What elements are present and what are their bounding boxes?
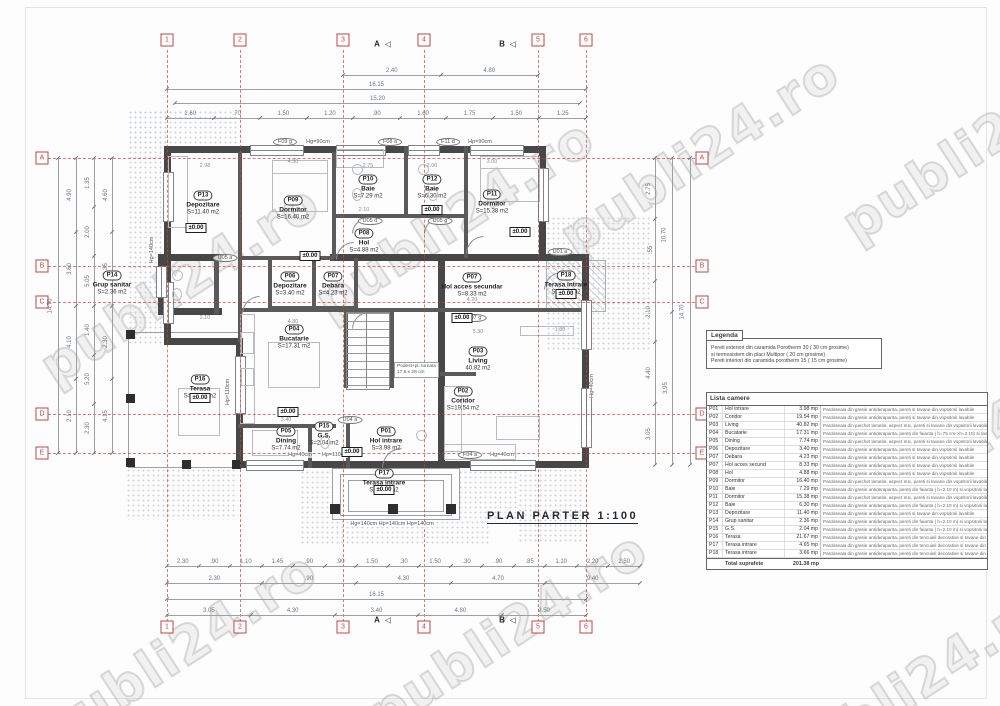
dimension-line — [167, 583, 640, 584]
room-id-tag: P06 — [281, 272, 300, 282]
dimension-value: .90 — [372, 111, 380, 117]
total-label: Total suprafete — [723, 559, 785, 569]
room-table-desc: Pardoseala din gresie antiderapanta, per… — [821, 446, 987, 453]
room-name: Baie — [353, 186, 382, 194]
room-id-tag: P07 — [324, 272, 343, 282]
dimension-value: 1.20 — [324, 111, 336, 117]
dimension-value: 2.30 — [103, 337, 109, 349]
room-table-area: 7.74 mp — [785, 438, 821, 445]
room-table-area: 3.66 mp — [785, 550, 821, 557]
room-table-area: 2.36 mp — [785, 518, 821, 525]
room-table-row: P04Bucatarie17.31 mpPardoseala din gresi… — [707, 430, 987, 438]
grid-bubble: 4 — [418, 621, 431, 634]
inner-dimension-value: 2.10 — [200, 315, 211, 321]
room-table-desc: Pardoseala din parchet lamelar, aspect n… — [821, 478, 987, 485]
room-id-tag: P18 — [557, 271, 576, 281]
dimension-value: .70 — [233, 111, 241, 117]
room-label: P02CoridorS=19.54 m2 — [447, 380, 480, 413]
window — [250, 145, 304, 156]
door-swing-arc — [466, 236, 484, 254]
room-area: S=15.38 m2 — [476, 209, 509, 216]
height-tag: Hp=90cm — [468, 139, 492, 145]
room-label: P08HolS=4.88 m2 — [349, 222, 378, 255]
room-table-name: Bucatarie — [723, 430, 785, 437]
room-table-name: Baie — [723, 502, 785, 509]
elevation-badge: ±0.00 — [452, 313, 473, 323]
room-table-desc: Pardoseala din parchet lamelar, aspect n… — [821, 494, 987, 501]
room-table-row: P01Hol intrare3.98 mpPardoseala din gres… — [707, 406, 987, 414]
inner-dimension-value: 1.80 — [555, 327, 566, 333]
column — [388, 504, 398, 514]
paving-hatch — [300, 470, 332, 522]
room-table-area: 4.88 mp — [785, 470, 821, 477]
dimension-value: 2.30 — [85, 423, 91, 435]
height-tag: Hg=40cm — [589, 374, 595, 398]
room-table-area: 17.31 mp — [785, 430, 821, 437]
dimension-tick — [638, 564, 642, 568]
dimension-value: 1.60 — [417, 111, 429, 117]
dimension-line — [167, 89, 586, 90]
room-table-area: 6.30 mp — [785, 502, 821, 509]
room-label: P09DormitorS=16.40 m2 — [277, 189, 310, 222]
room-table-desc: Pardoseala din gresie antiderapanta, per… — [821, 462, 987, 469]
room-table-row: P17Terasa intrare4.65 mpPardoseala din g… — [707, 542, 987, 550]
fixture-outline — [172, 270, 183, 281]
room-table-desc: Pardoseala din gresie antiderapanta, per… — [821, 518, 987, 525]
room-name: Baie — [417, 186, 446, 194]
room-name: Living — [465, 358, 490, 366]
dimension-tick — [653, 463, 657, 467]
door-window-tag: F04 a — [458, 451, 482, 459]
room-table-row: P08Hol4.88 mpPardoseala din gresie antid… — [707, 470, 987, 478]
interior-wall — [404, 146, 408, 218]
room-table-id: P01 — [707, 406, 723, 413]
dimension-value: 3.05 — [203, 608, 215, 614]
dimension-value: 4.30 — [287, 608, 299, 614]
fixture-outline — [172, 288, 182, 301]
room-label: P10BaieS=7.29 m2 — [353, 168, 382, 201]
legend-title: Legenda — [706, 330, 743, 341]
room-table-row: P05Dining7.74 mpPardoseala din parchet l… — [707, 438, 987, 446]
room-table-row: P03Living40.82 mpPardoseala din parchet … — [707, 422, 987, 430]
grid-axis-vertical — [167, 50, 168, 622]
dimension-value: 1.40 — [85, 324, 91, 336]
section-mark: B — [499, 40, 505, 49]
room-table-area: 16.40 mp — [785, 478, 821, 485]
dimension-value: 4.10 — [67, 337, 73, 349]
room-id-tag: P01 — [377, 427, 396, 437]
dimension-line — [167, 615, 586, 616]
room-name: Grup sanitar — [93, 282, 132, 290]
room-name: Dormitor — [277, 207, 310, 215]
room-table-desc: Pardoseala din gresie antiderapanta, per… — [821, 542, 987, 549]
room-table-name: G.S. — [723, 526, 785, 533]
room-name: Depozitare — [186, 202, 219, 210]
room-table-desc: Pardoseala din gresie antiderapanta, per… — [821, 454, 987, 461]
room-table-desc: Pardoseala din gresie antiderapanta, per… — [821, 534, 987, 541]
total-spacer — [707, 559, 723, 569]
room-list-table: Lista camere P01Hol intrare3.98 mpPardos… — [706, 392, 988, 570]
room-list-total-row: Total suprafete 201.38 mp — [707, 558, 987, 569]
elevation-badge: ±0.00 — [374, 485, 395, 495]
section-mark: A — [374, 40, 380, 49]
dimension-tick — [578, 101, 582, 105]
room-table-id: P11 — [707, 494, 723, 501]
room-area: S=11.40 m2 — [186, 210, 219, 217]
grid-bubble: 2 — [234, 34, 247, 47]
grid-axis-horizontal — [48, 158, 700, 159]
furniture-outline — [272, 160, 328, 174]
furniture-outline — [241, 332, 254, 354]
room-table-name: Terasa intrare — [723, 542, 785, 549]
column — [126, 458, 135, 467]
dimension-value: .90 — [494, 559, 502, 565]
room-id-tag: P12 — [423, 175, 442, 185]
grid-axis-horizontal — [48, 266, 700, 267]
door-window-tag: U01 a — [548, 248, 573, 256]
room-table-id: P12 — [707, 502, 723, 509]
room-name: Hol intrare — [370, 438, 403, 446]
room-table-id: P15 — [707, 526, 723, 533]
grid-bubble: 2 — [234, 621, 247, 634]
room-table-desc: Pardoseala din parchet lamelar, aspect n… — [821, 422, 987, 429]
column — [126, 330, 135, 339]
room-table-area: 4.65 mp — [785, 542, 821, 549]
window — [246, 460, 304, 471]
paving-hatch — [518, 468, 584, 544]
dimension-tick — [670, 463, 674, 467]
room-label: P04BucatarieS=17.31 m2 — [278, 318, 311, 351]
column — [126, 394, 135, 403]
section-arrow-icon: ◁ — [510, 40, 516, 49]
room-area: S=2.04 m2 — [309, 441, 338, 448]
room-table-desc: Pardoseala din gresie antiderapanta, per… — [821, 550, 987, 557]
room-area: S=16.40 m2 — [277, 215, 310, 222]
grid-axis-horizontal — [48, 414, 700, 415]
dimension-value: 2.10 — [67, 410, 73, 422]
dimension-value: 3.95 — [663, 382, 669, 394]
interior-wall — [440, 308, 586, 312]
dimension-value: 1.50 — [278, 111, 290, 117]
grid-bubble: 3 — [337, 621, 350, 634]
room-table-desc: Pardoseala din gresie antiderapanta, per… — [821, 470, 987, 477]
room-name: Hol acces secundar — [441, 284, 502, 292]
dimension-value: .30 — [399, 559, 407, 565]
dimension-value: 1.75 — [464, 111, 476, 117]
room-table-id: P02 — [707, 414, 723, 421]
dimension-value: 1.10 — [555, 559, 567, 565]
dimension-value: 1.35 — [85, 177, 91, 189]
total-value: 201.38 mp — [785, 559, 821, 569]
room-table-row: P10Baie7.29 mpPardoseala din gresie anti… — [707, 486, 987, 494]
room-label: P15G.S.S=2.04 m2 — [309, 415, 338, 448]
dimension-value: .55 — [648, 246, 654, 254]
room-id-tag: P07 — [463, 273, 482, 283]
room-table-id: P05 — [707, 438, 723, 445]
room-id-tag: P13 — [194, 191, 213, 201]
door-swing-arc — [242, 296, 260, 314]
paving-hatch — [126, 468, 238, 520]
room-id-tag: P10 — [359, 175, 378, 185]
door-window-tag: F08 a — [378, 138, 402, 146]
dimension-tick — [688, 463, 692, 467]
room-area: S=7.74 m2 — [271, 446, 300, 453]
inner-dimension-value: 2.10 — [359, 207, 370, 213]
room-table-name: Hol intrare — [723, 406, 785, 413]
dimension-value: .90 — [210, 559, 218, 565]
dimension-value: 2.30 — [177, 559, 189, 565]
room-name: Depozitare — [273, 283, 306, 291]
dimension-value: 3.60 — [67, 263, 73, 275]
grid-bubble: A — [696, 152, 709, 165]
room-name: Dormitor — [476, 201, 509, 209]
room-table-area: 11.40 mp — [785, 510, 821, 517]
room-table-id: P07 — [707, 462, 723, 469]
room-table-area: 15.38 mp — [785, 494, 821, 501]
grid-axis-vertical — [586, 50, 587, 622]
section-mark: A — [374, 616, 380, 625]
window — [470, 145, 524, 156]
room-label: P07Hol acces secundarS=8.33 m2 — [441, 266, 502, 299]
grid-bubble: C — [696, 296, 709, 309]
interior-wall — [238, 308, 442, 312]
room-table-area: 8.33 mp — [785, 462, 821, 469]
room-area: S=17.31 m2 — [278, 344, 311, 351]
dimension-value: 2.75 — [646, 183, 652, 195]
door-window-tag: F11 d — [436, 138, 460, 146]
room-id-tag: P05 — [277, 427, 296, 437]
grid-bubble: 4 — [418, 34, 431, 47]
room-table-area: 21.67 mp — [785, 534, 821, 541]
room-table-desc: Pardoseala din gresie antiderapanta, per… — [821, 502, 987, 509]
drawing-sheet: publi24.ropubli24.ropubli24.ropubli24.ro… — [0, 0, 1000, 706]
room-id-tag: P15 — [315, 422, 334, 432]
elevation-badge: ±0.00 — [556, 289, 577, 299]
room-area: S=4.23 m2 — [318, 291, 347, 298]
room-area: S=19.54 m2 — [447, 406, 480, 413]
interior-wall — [440, 372, 476, 376]
dimension-value: 4.40 — [646, 367, 652, 379]
room-table-name: Debara — [723, 454, 785, 461]
room-id-tag: P14 — [103, 271, 122, 281]
window — [470, 460, 536, 471]
room-table-id: P04 — [707, 430, 723, 437]
height-tag: Hg=40cm — [288, 452, 312, 458]
dimension-value: 1.10 — [240, 559, 252, 565]
dimension-line — [167, 118, 586, 119]
column — [330, 504, 340, 514]
dimension-value: 4.70 — [492, 576, 504, 582]
room-label: P07DebaraS=4.23 m2 — [318, 265, 347, 298]
room-table-name: Baie — [723, 486, 785, 493]
dimension-value: 3.40 — [371, 608, 383, 614]
room-table-id: P03 — [707, 422, 723, 429]
room-table-area: 3.98 mp — [785, 406, 821, 413]
room-table-name: Dormitor — [723, 494, 785, 501]
stairs-note: Podest+pl. turnata17.6 x 28 cm — [394, 362, 439, 378]
room-label: P05DiningS=7.74 m2 — [271, 420, 300, 453]
room-area: 40.82 m2 — [465, 366, 490, 373]
grid-axis-horizontal — [48, 302, 700, 303]
dimension-line — [167, 566, 640, 567]
dimension-value: 2.40 — [386, 68, 398, 74]
grid-axis-vertical — [424, 50, 425, 622]
room-table-desc: Pardoseala din parchet lamelar, aspect n… — [821, 438, 987, 445]
room-name: Bucatarie — [278, 336, 311, 344]
inner-dimension-value: 5.30 — [473, 329, 484, 335]
grid-axis-vertical — [538, 50, 539, 622]
room-table-id: P17 — [707, 542, 723, 549]
room-table-row: P09Dormitor16.40 mpPardoseala din parche… — [707, 478, 987, 486]
height-tag: Hg=40cm — [490, 452, 514, 458]
room-table-id: P09 — [707, 478, 723, 485]
dimension-value: 2.10 — [646, 306, 652, 318]
room-table-id: P06 — [707, 446, 723, 453]
room-label: P03Living40.82 m2 — [465, 340, 490, 373]
legend-line: Pereti interiori din caramida porotherm … — [711, 358, 877, 365]
dimension-value: .90 — [336, 559, 344, 565]
grid-bubble: A — [36, 152, 49, 165]
room-table-name: Hol acces secund — [723, 462, 785, 469]
dimension-value: 2.50 — [618, 559, 630, 565]
room-area: S=6.30 m2 — [417, 194, 446, 201]
dimension-value: .90 — [305, 576, 313, 582]
door-window-tag: U05 g — [428, 217, 453, 225]
column — [182, 460, 191, 469]
room-table-desc: Pardoseala din gresie antiderapanta, per… — [821, 406, 987, 413]
room-table-name: Living — [723, 422, 785, 429]
room-list-title: Lista camere — [707, 393, 987, 406]
furniture-outline — [496, 416, 540, 440]
room-id-tag: P11 — [483, 190, 501, 200]
room-label: P12BaieS=6.30 m2 — [417, 168, 446, 201]
section-arrow-icon: ◁ — [510, 616, 516, 625]
room-table-row: P07Hol acces secund8.33 mpPardoseala din… — [707, 462, 987, 470]
height-tag: Hg=140cm Hp=140cm Hp=140cm — [350, 521, 433, 527]
exterior-wall — [164, 338, 242, 345]
dimension-value: 1.50 — [429, 559, 441, 565]
room-id-tag: P08 — [355, 229, 374, 239]
height-tag: Hp=110cm — [225, 379, 231, 405]
room-id-tag: P03 — [469, 347, 488, 357]
dimension-line — [655, 158, 656, 465]
dimension-value: 16.15 — [369, 592, 384, 598]
room-name: Coridor — [447, 398, 480, 406]
inner-dimension-value: 3.00 — [487, 159, 498, 165]
column — [446, 504, 456, 514]
section-arrow-icon: ◁ — [385, 616, 391, 625]
room-table-name: Hol — [723, 470, 785, 477]
dimension-value: 4.80 — [483, 68, 495, 74]
stairs-rail — [366, 312, 367, 388]
furniture-outline — [520, 326, 574, 336]
room-area: S=4.88 m2 — [349, 248, 378, 255]
room-name: Debara — [318, 283, 347, 291]
room-table-name: Grup sanitar — [723, 518, 785, 525]
elevation-badge: ±0.00 — [190, 393, 211, 403]
room-label: P01Hol intrareS=3.98 m2 — [370, 420, 403, 453]
room-name: Hol — [349, 240, 378, 248]
fixture-outline — [416, 430, 427, 441]
room-table-name: Depozitare — [723, 510, 785, 517]
dimension-value: 1.50 — [366, 559, 378, 565]
dimension-line — [167, 599, 586, 600]
dimension-line — [58, 158, 59, 453]
interior-wall — [346, 424, 350, 468]
room-table-desc: Pardoseala din gresie antiderapanta, per… — [821, 526, 987, 533]
room-table-row: P02Coridor19.54 mpPardoseala din gresie … — [707, 414, 987, 422]
room-id-tag: P02 — [454, 387, 473, 397]
inner-dimension-value: 2.98 — [200, 163, 211, 169]
room-table-name: Terasa — [723, 534, 785, 541]
grid-bubble: D — [36, 408, 49, 421]
dimension-value: 2.60 — [184, 111, 196, 117]
grid-bubble: 1 — [161, 621, 174, 634]
room-table-desc: Pardoseala din gresie antiderapanta, per… — [821, 414, 987, 421]
room-table-name: Coridor — [723, 414, 785, 421]
grid-bubble: B — [696, 260, 709, 273]
room-table-name: Depozitare — [723, 446, 785, 453]
room-table-area: 40.82 mp — [785, 422, 821, 429]
room-name: Dining — [271, 438, 300, 446]
furniture-outline — [168, 156, 188, 228]
dimension-value: 9.40 — [587, 576, 599, 582]
room-id-tag: P09 — [284, 196, 303, 206]
room-table-id: P08 — [707, 470, 723, 477]
grid-bubble: 6 — [580, 621, 593, 634]
section-arrow-icon: ◁ — [385, 40, 391, 49]
dimension-value: 4.30 — [398, 576, 410, 582]
room-area: S=7.29 m2 — [353, 194, 382, 201]
window — [156, 266, 167, 298]
dimension-value: 1.25 — [557, 111, 569, 117]
room-table-name: Terasa intrare — [723, 550, 785, 557]
grid-bubble: 6 — [580, 34, 593, 47]
dimension-value: 5.20 — [85, 373, 91, 385]
dimension-value: 16.15 — [369, 82, 384, 88]
dimension-value: 5.05 — [85, 275, 91, 287]
dimension-value: 2.20 — [587, 559, 599, 565]
elevation-badge: ±0.00 — [510, 227, 531, 237]
room-table-name: Dining — [723, 438, 785, 445]
room-table-row: P12Baie6.30 mpPardoseala din gresie anti… — [707, 502, 987, 510]
inner-dimension-value: 4.30 — [288, 159, 299, 165]
dimension-value: 3.05 — [646, 428, 652, 440]
room-id-tag: P04 — [285, 325, 304, 335]
room-table-row: P18Terasa intrare3.66 mpPardoseala din g… — [707, 550, 987, 558]
room-table-id: P07 — [707, 454, 723, 461]
dimension-value: 2.00 — [85, 226, 91, 238]
elevation-badge: ±0.00 — [300, 251, 321, 261]
grid-axis-vertical — [240, 50, 241, 622]
door-window-tag: U05 a — [213, 254, 238, 262]
dimension-value: 15.20 — [370, 96, 385, 102]
room-table-id: P10 — [707, 486, 723, 493]
height-tag: Hg=90cm — [306, 139, 330, 145]
room-label: P14Grup sanitarS=2.36 m2 — [93, 264, 132, 297]
room-table-area: 19.54 mp — [785, 414, 821, 421]
interior-wall — [214, 256, 219, 314]
room-table-desc: Pardoseala din gresie antiderapanta, per… — [821, 510, 987, 517]
room-table-name: Dormitor — [723, 478, 785, 485]
dimension-value: .90 — [305, 559, 313, 565]
room-table-area: 2.04 mp — [785, 526, 821, 533]
door-window-tag: U04 a — [338, 416, 363, 424]
elevation-badge: ±0.00 — [422, 205, 443, 215]
dimension-value: 4.60 — [103, 189, 109, 201]
room-table-row: P07Debara4.23 mpPardoseala din gresie an… — [707, 454, 987, 462]
room-id-tag: P17 — [375, 469, 394, 479]
